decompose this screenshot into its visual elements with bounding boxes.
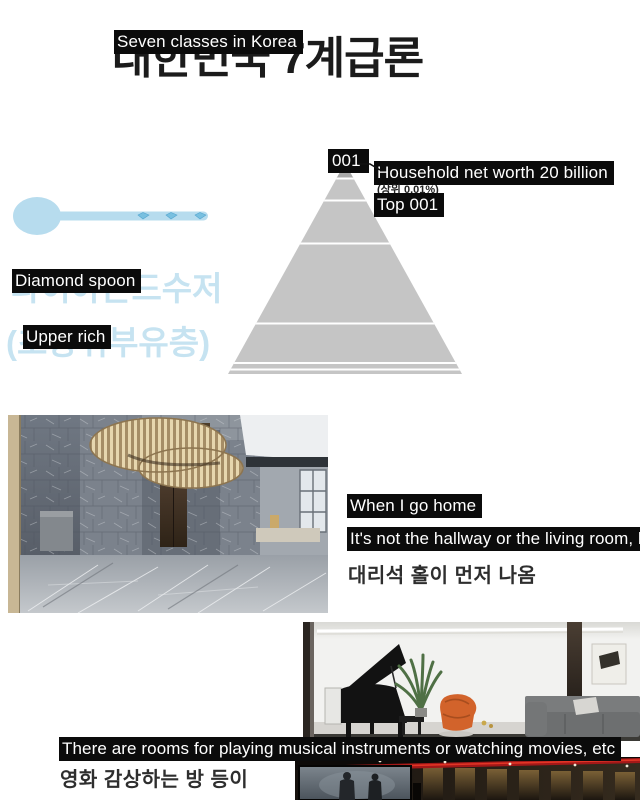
top001-caption: Top 001 xyxy=(374,193,444,217)
diamond-spoon-icon xyxy=(10,192,210,238)
gray-sofa xyxy=(525,696,640,737)
callout-leader-line xyxy=(356,161,382,173)
upper-rich-overlay: Upper rich xyxy=(23,325,111,349)
movie-room-korean: 영화 감상하는 방 등이 xyxy=(60,763,248,792)
hallway-caption: It's not the hallway or the living room,… xyxy=(347,527,640,551)
rooms-caption: There are rooms for playing musical inst… xyxy=(59,737,621,761)
piano-room-photo xyxy=(303,622,640,741)
home-theater-photo xyxy=(295,757,640,800)
marble-hall-korean: 대리석 홀이 먼저 나옴 xyxy=(348,559,536,588)
marble-hall-photo xyxy=(8,415,328,613)
diamond-spoon-overlay: Diamond spoon xyxy=(12,269,141,293)
title-translation-overlay: Seven classes in Korea xyxy=(114,30,303,54)
gohome-caption: When I go home xyxy=(347,494,482,518)
projection-screen xyxy=(299,766,411,800)
meme-image: 대한민국 7계급론 Seven classes in Korea 다이아몬드수저… xyxy=(0,0,640,800)
